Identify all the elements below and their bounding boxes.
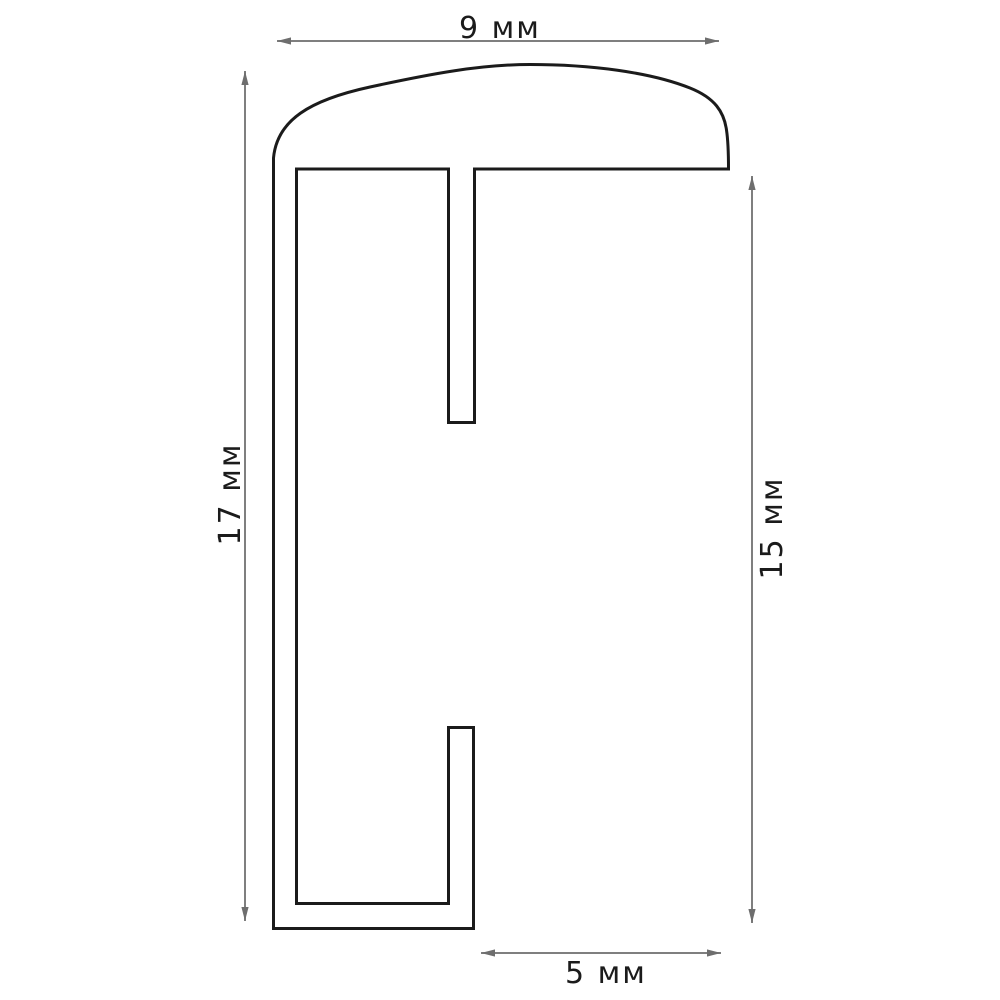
dimension-label-right: 15 мм — [755, 477, 790, 580]
dimension-label-top: 9 мм — [459, 11, 541, 46]
dimension-top: 9 мм — [277, 11, 719, 46]
dimension-left: 17 мм — [213, 71, 248, 921]
dimension-label-left: 17 мм — [213, 443, 248, 546]
dimension-label-bottom: 5 мм — [565, 956, 647, 991]
profile-drawing-canvas: 9 мм 17 мм 15 мм 5 мм — [0, 0, 1000, 1000]
profile-drawing: 9 мм 17 мм 15 мм 5 мм — [0, 0, 1000, 1000]
dimension-right: 15 мм — [752, 176, 790, 923]
dimension-bottom: 5 мм — [481, 953, 721, 991]
profile-outline — [274, 65, 729, 929]
